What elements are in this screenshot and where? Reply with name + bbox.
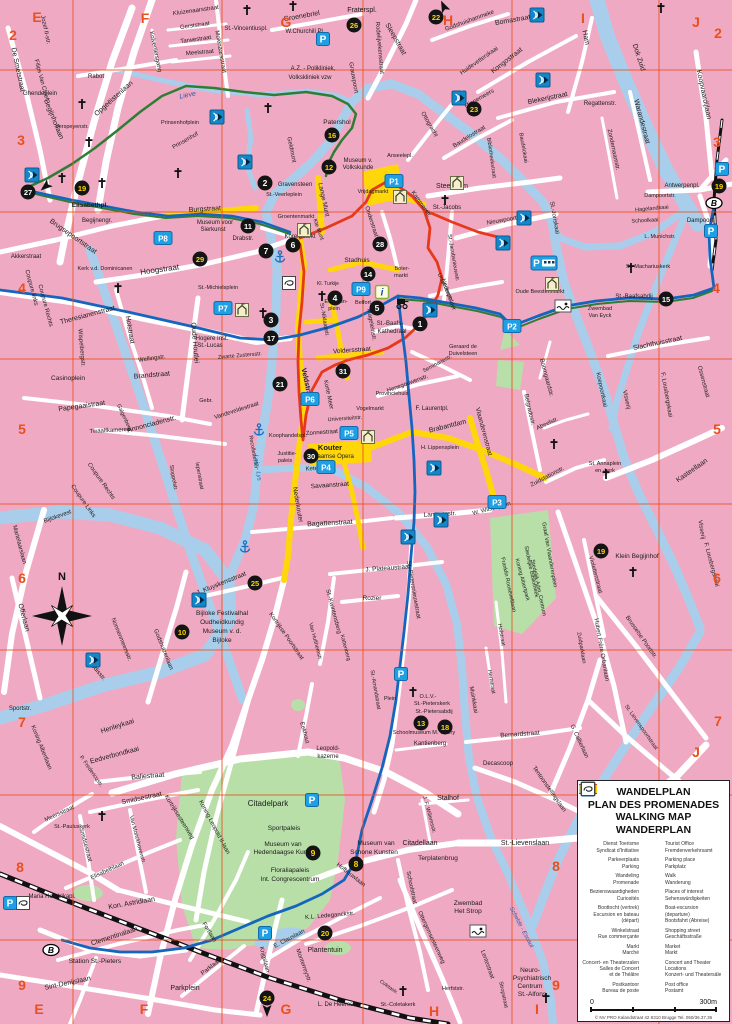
legend-label-en: Tourist OfficeFremdenverkehrsamt: [665, 841, 729, 854]
station-icon[interactable]: B: [706, 198, 722, 209]
poi-marker-18[interactable]: 18: [438, 720, 453, 735]
legend-title-line: WALKING MAP: [582, 811, 725, 824]
info-icon[interactable]: i: [376, 286, 389, 299]
street-label: Kerk v.d. Dominicanen: [78, 266, 133, 272]
poi-marker-10[interactable]: 10: [175, 625, 190, 640]
swim-icon[interactable]: [470, 925, 486, 937]
street-label: Verspeyenstr.: [55, 124, 89, 130]
street-label: Neuro-: [520, 967, 540, 974]
legend-label-nl: WandelingPromenade: [582, 873, 639, 886]
street-label: Sportstr.: [9, 706, 32, 712]
concert-icon[interactable]: [25, 168, 39, 182]
poi-marker-31[interactable]: 31: [336, 364, 351, 379]
street-label: Museum v. d.: [203, 628, 242, 635]
street-label: Museum van: [357, 840, 395, 847]
poi-marker-5[interactable]: 5: [370, 301, 385, 316]
street-label: Centrum: [518, 983, 543, 990]
grid-label-I: I: [581, 10, 585, 26]
svg-text:P: P: [262, 929, 269, 940]
svg-text:B: B: [48, 945, 54, 955]
legend-label-nl: MarktMarché: [582, 944, 639, 957]
legend-label-en: WalkWanderung: [665, 873, 729, 886]
street-label: Koophandelspl.: [269, 433, 307, 439]
grid-label-F: F: [140, 1001, 149, 1017]
parking-P[interactable]: P: [317, 33, 330, 46]
svg-text:6: 6: [291, 240, 296, 250]
svg-text:P7: P7: [218, 305, 228, 314]
street-label: Museum voor: [197, 220, 233, 226]
street-label: Kouter: [318, 443, 342, 452]
street-label: St.-Alfons: [518, 991, 547, 998]
svg-text:14: 14: [364, 270, 373, 279]
market-icon[interactable]: [298, 224, 311, 237]
svg-text:P3: P3: [492, 499, 502, 508]
svg-text:P: P: [398, 670, 405, 681]
street-label: Kantienberg: [414, 741, 446, 747]
market-icon[interactable]: [451, 177, 464, 190]
svg-text:19: 19: [715, 182, 723, 191]
svg-text:20: 20: [321, 929, 329, 938]
svg-text:B: B: [711, 198, 717, 208]
legend-label-en: Places of interestSehenswürdigkeiten: [665, 889, 729, 902]
street-label: L. Munichstr.: [644, 234, 676, 240]
svg-text:P: P: [7, 899, 14, 910]
legend-row-shopping-street: WinkelstraatRue commerçanteShopping stre…: [582, 928, 725, 941]
street-label: Volkskliniek vzw: [288, 75, 332, 81]
legend-row-concert-theater: Concert- en TheaterzalenSalles de Concer…: [582, 960, 725, 979]
street-label: L. De Heerestr.: [318, 1002, 359, 1008]
street-label: Plantentuin: [307, 947, 342, 954]
parking-P7[interactable]: P7: [214, 302, 232, 315]
street-label: Hedendaagse Kunst: [254, 849, 313, 856]
grid-label-H: H: [443, 12, 453, 28]
street-label: Boter-: [395, 266, 410, 272]
street-label: Zwembad: [454, 900, 483, 907]
street-label: Fraterspl.: [347, 7, 377, 14]
grid-label-8: 8: [552, 858, 560, 874]
street-label: Plein: [384, 696, 396, 702]
station-icon[interactable]: B: [43, 945, 59, 956]
poi-marker-1[interactable]: 1: [413, 317, 428, 332]
concert-icon[interactable]: [210, 110, 224, 124]
street-label: Klein Begijnhof: [615, 553, 659, 560]
grid-label-4: 4: [712, 280, 720, 296]
street-label: Museum van: [264, 841, 302, 848]
parking-P6[interactable]: P6: [301, 393, 319, 406]
legend-label-nl: ParkeerplaatsParking: [582, 857, 639, 870]
concert-icon[interactable]: [530, 8, 544, 22]
poi-marker-26[interactable]: 26: [347, 18, 362, 33]
concert-icon[interactable]: [192, 593, 206, 607]
street-label: Duivelsteen: [449, 351, 478, 357]
poi-marker-6[interactable]: 6: [286, 238, 301, 253]
parking-P[interactable]: P: [306, 794, 319, 807]
legend-label-en: Shopping streetGeschäftsstraße: [665, 928, 729, 941]
poi-marker-25[interactable]: 25: [248, 576, 263, 591]
street-label: Decascoop: [483, 761, 514, 767]
svg-text:P: P: [533, 259, 540, 270]
street-label: St.-Veerleplein: [266, 192, 302, 198]
street-label: St.-Pietersabdij: [415, 709, 452, 715]
street-label: Parkplein: [170, 985, 199, 992]
parking-P1[interactable]: P1: [385, 175, 403, 188]
street-label: Het Strop: [454, 908, 482, 915]
street-label: Bijloke Festivalhal: [196, 610, 249, 617]
parking-P3[interactable]: P3: [488, 496, 506, 509]
poi-marker-7[interactable]: 7: [259, 244, 274, 259]
street-label: O.L.V.-: [420, 694, 437, 700]
street-label: Rabot: [88, 74, 104, 80]
street-label: St.-Baafs-: [377, 321, 404, 327]
street-label: Dampoort: [687, 218, 714, 224]
market-icon[interactable]: [546, 278, 559, 291]
grid-label-6: 6: [18, 570, 26, 586]
grid-label-J: J: [692, 14, 700, 30]
concert-icon[interactable]: [434, 513, 448, 527]
post-icon[interactable]: [17, 897, 30, 910]
poi-marker-30[interactable]: 30: [304, 449, 319, 464]
street-label: Sierkunst: [200, 227, 225, 233]
street-label: Dampoortstr.: [644, 193, 676, 199]
concert-icon[interactable]: [86, 653, 100, 667]
street-label: St.-Lucas: [197, 343, 222, 349]
park: [291, 699, 305, 711]
svg-text:4: 4: [333, 293, 338, 303]
svg-text:P6: P6: [305, 396, 315, 405]
street-label: Geraard de: [449, 344, 477, 350]
grid-label-9: 9: [552, 977, 560, 993]
street-label: Oudheidkundig: [200, 619, 244, 626]
street-label: Casinoplein: [51, 375, 85, 382]
street-label: plein: [328, 306, 340, 312]
street-label: Citadelpark: [248, 799, 289, 808]
grid-label-3: 3: [17, 132, 25, 148]
legend-title-line: WANDERPLAN: [582, 824, 725, 837]
poi-marker-3[interactable]: 3: [264, 313, 279, 328]
grid-label-4: 4: [18, 280, 26, 296]
street-label: paleis: [278, 458, 293, 464]
street-label: Vrijdagmarkt: [358, 189, 389, 195]
grid-label-E: E: [34, 1001, 43, 1017]
parking-P[interactable]: P: [395, 668, 408, 681]
svg-text:23: 23: [470, 105, 478, 114]
street-label: St.-Jacobs: [433, 205, 461, 211]
grid-label-E: E: [32, 9, 41, 25]
street-label: St.-Coletakerk: [381, 1002, 416, 1008]
poi-marker-4[interactable]: 4: [328, 291, 343, 306]
street-label: Kathedraal: [377, 329, 406, 335]
svg-text:31: 31: [339, 367, 347, 376]
shopping-street: [306, 320, 336, 322]
poi-marker-24[interactable]: 24: [260, 991, 275, 1006]
poi-marker-23[interactable]: 23: [467, 102, 482, 117]
poi-marker-9[interactable]: 9: [306, 846, 321, 861]
street-label: Ghendeplein: [23, 91, 57, 97]
street-label: Int. Congrescentrum: [261, 876, 320, 883]
parking-P[interactable]: P: [4, 897, 17, 910]
svg-text:P: P: [309, 796, 316, 807]
street-label: St.-Pieterskerk: [414, 701, 450, 707]
poi-marker-27[interactable]: 27: [21, 185, 36, 200]
poi-marker-19[interactable]: 19: [712, 179, 727, 194]
svg-text:17: 17: [267, 334, 275, 343]
street-label: St.-Baafsabdij: [615, 294, 652, 300]
svg-text:28: 28: [376, 240, 384, 249]
park: [496, 360, 524, 390]
copyright: © NV PRO Kalandstraat 42 8310 Brugge Tel…: [582, 1015, 725, 1020]
street-label: Station St.-Pieters: [69, 958, 122, 965]
legend-row-tourist-office: Dienst ToerismeSyndicat d'InitiativeiTou…: [582, 841, 725, 854]
legend-row-post-office: PostkantoorBureau de postePost officePos…: [582, 982, 725, 995]
svg-text:18: 18: [441, 723, 449, 732]
svg-text:10: 10: [178, 628, 186, 637]
svg-text:22: 22: [432, 13, 440, 22]
street-label: Psychiatrisch: [513, 975, 552, 982]
legend-label-en: Concert and TheaterLocationsKonzert- und…: [665, 960, 729, 979]
parking-P4[interactable]: P4: [317, 461, 335, 474]
street-label: Leopold-: [316, 746, 339, 752]
svg-text:25: 25: [251, 579, 259, 588]
street-label: Volkskunde: [343, 165, 374, 171]
street-label: Rozier: [363, 595, 383, 602]
poi-marker-19[interactable]: 19: [75, 181, 90, 196]
grid-label-9: 9: [18, 977, 26, 993]
poi-marker-8[interactable]: 8: [349, 857, 364, 872]
swim-icon[interactable]: [555, 300, 571, 312]
street-label: Floraliapaleis: [271, 867, 310, 874]
street-label: St.-Vincentiuspl.: [224, 26, 268, 32]
concert-icon[interactable]: [536, 73, 550, 87]
grid-label-F: F: [141, 10, 150, 26]
svg-text:P: P: [708, 227, 715, 238]
street-label: Belfort: [355, 300, 371, 306]
svg-text:19: 19: [597, 547, 605, 556]
legend-title-line: PLAN DES PROMENADES: [582, 799, 725, 812]
post-icon[interactable]: [582, 783, 595, 796]
street-label: Regattenstr.: [584, 101, 617, 107]
street-label: St.-Michielsplein: [198, 285, 238, 291]
svg-text:16: 16: [328, 131, 336, 140]
svg-text:29: 29: [196, 255, 204, 264]
legend-row-places-of-interest: BezienswaardighedenCuriositésPlaces of i…: [582, 889, 725, 902]
svg-text:P5: P5: [344, 430, 354, 439]
poi-marker-19[interactable]: 19: [594, 544, 609, 559]
poi-marker-17[interactable]: 17: [264, 331, 279, 346]
svg-text:7: 7: [264, 246, 269, 256]
svg-text:21: 21: [276, 380, 284, 389]
svg-text:P: P: [320, 35, 327, 46]
legend-label-nl: Boottocht (vertrek)Excursion en bateau(d…: [582, 905, 639, 924]
poi-marker-12[interactable]: 12: [322, 160, 337, 175]
svg-text:30: 30: [307, 452, 315, 461]
legend-rows: Dienst ToerismeSyndicat d'InitiativeiTou…: [582, 841, 725, 994]
parking-P8[interactable]: P8: [154, 232, 172, 245]
street-label: Maria Hendrikapl.: [28, 894, 75, 900]
street-label: Provinciehuis: [376, 391, 409, 397]
legend-label-en: Boat-excursion(departure)Bootsfahrt (Abr…: [665, 905, 729, 924]
legend-label-nl: Dienst ToerismeSyndicat d'Initiative: [582, 841, 639, 854]
street-label: Gravensteen: [278, 182, 312, 188]
grid-label-G: G: [281, 1001, 292, 1017]
svg-text:13: 13: [417, 719, 425, 728]
svg-text:15: 15: [662, 295, 670, 304]
street-label: Citadellaan: [402, 840, 437, 847]
legend-label-en: Post officePostamt: [665, 982, 729, 995]
legend-label-nl: WinkelstraatRue commerçante: [582, 928, 639, 941]
legend-label-nl: PostkantoorBureau de poste: [582, 982, 639, 995]
street-label: F. Laurentpl.: [415, 406, 448, 412]
svg-text:12: 12: [325, 163, 333, 172]
svg-text:26: 26: [350, 21, 358, 30]
grid-label-6: 6: [713, 570, 721, 586]
park: [73, 885, 103, 901]
legend-label-nl: Concert- en TheaterzalenSalles de Concer…: [582, 960, 639, 979]
street-label: H. Lippensplein: [421, 445, 459, 451]
concert-icon[interactable]: [238, 155, 252, 169]
grid-label-H: H: [429, 1003, 439, 1019]
svg-text:P8: P8: [158, 235, 168, 244]
svg-text:P1: P1: [389, 178, 399, 187]
parking-P2[interactable]: P2: [503, 320, 521, 333]
legend-title-line: WANDELPLAN: [582, 786, 725, 799]
street-label: Stadhuis: [344, 257, 370, 264]
legend-label-en: Parking placeParkplatz: [665, 857, 729, 870]
poi-marker-11[interactable]: 11: [241, 219, 256, 234]
parking-P9[interactable]: P9: [352, 283, 370, 296]
svg-text:8: 8: [354, 859, 359, 869]
parking-P5[interactable]: P5: [340, 427, 358, 440]
parking-P[interactable]: P: [716, 163, 729, 176]
legend-row-market: MarktMarchéMarketMarkt: [582, 944, 725, 957]
poi-marker-13[interactable]: 13: [414, 716, 429, 731]
grid-label-I: I: [535, 1001, 539, 1017]
poi-marker-20[interactable]: 20: [318, 926, 333, 941]
grid-label-J: J: [692, 744, 700, 760]
street-label: Justitie-: [278, 451, 297, 457]
street-label: Vogelmarkt: [356, 406, 384, 412]
street-label: Museum v.: [344, 158, 373, 164]
grid-label-5: 5: [713, 421, 721, 437]
scale-start: 0: [590, 999, 594, 1006]
svg-text:P2: P2: [507, 323, 517, 332]
scale-bar: 0 300m: [582, 999, 725, 1012]
street-label: markt: [394, 273, 408, 279]
street-label: Akkerstraat: [11, 254, 42, 260]
grid-label-3: 3: [713, 134, 721, 150]
parking-P[interactable]: P: [705, 225, 718, 238]
street-label: Stalhof: [437, 795, 459, 802]
busP-icon[interactable]: P: [531, 256, 557, 270]
svg-text:3: 3: [269, 315, 274, 325]
street-label: Bijloke: [212, 637, 232, 644]
street-label: A.Z. - Polikliniek,: [291, 66, 336, 72]
grid-label-7: 7: [18, 714, 26, 730]
street-label: Groentenmarkt: [278, 214, 315, 220]
street-label: Kl. Turkije: [317, 281, 339, 287]
walking-map-page: De SmetstraatFilips Van CleefJozef II-st…: [0, 0, 732, 1024]
svg-text:N: N: [58, 571, 66, 583]
street-label: Hogere Inst.: [196, 336, 229, 342]
street-label: Herfststr.: [442, 986, 464, 992]
legend-title: WANDELPLANPLAN DES PROMENADESWALKING MAP…: [582, 786, 725, 836]
svg-text:P9: P9: [356, 286, 366, 295]
svg-text:P: P: [719, 165, 726, 176]
street-label: St.-Pauluskerk: [54, 824, 90, 830]
poi-marker-29[interactable]: 29: [193, 252, 208, 267]
street-label: Sportpaleis: [268, 825, 301, 832]
street-label: Schone Kunsten: [350, 849, 398, 856]
poi-marker-2[interactable]: 2: [258, 176, 273, 191]
svg-text:1: 1: [418, 319, 423, 329]
street-label: Zwembad: [588, 306, 612, 312]
post-icon[interactable]: [283, 277, 296, 290]
legend-label-nl: BezienswaardighedenCuriosités: [582, 889, 639, 902]
street-label: St.-Lievenslaan: [501, 840, 549, 847]
street-label: Begijnengr.: [82, 218, 112, 224]
street-label: Vlaamse Opera: [312, 454, 354, 460]
street-label: Patershol: [323, 119, 351, 126]
grid-label-G: G: [281, 14, 292, 30]
concert-icon[interactable]: [496, 236, 510, 250]
svg-text:2: 2: [263, 178, 268, 188]
street-label: Drabstr.: [232, 236, 253, 242]
street-label: St. Annaplein: [589, 461, 621, 467]
parking-P[interactable]: P: [259, 927, 272, 940]
legend-label-en: MarketMarkt: [665, 944, 729, 957]
grid-label-2: 2: [9, 27, 17, 43]
street-label: Antwerpenpl.: [664, 183, 699, 189]
grid-label-2: 2: [714, 25, 722, 41]
grid-label-8: 8: [16, 859, 24, 875]
poi-marker-21[interactable]: 21: [273, 377, 288, 392]
svg-text:19: 19: [78, 184, 86, 193]
legend-row-boat-excursion: Boottocht (vertrek)Excursion en bateau(d…: [582, 905, 725, 924]
street-label: Van Eyck: [589, 313, 612, 319]
legend-row-parking: ParkeerplaatsParkingParking placeParkpla…: [582, 857, 725, 870]
grid-label-7: 7: [714, 713, 722, 729]
concert-icon[interactable]: [427, 461, 441, 475]
market-icon[interactable]: [394, 191, 407, 204]
concert-icon[interactable]: [452, 91, 466, 105]
scale-end: 300m: [699, 999, 717, 1006]
svg-text:11: 11: [244, 222, 252, 231]
street-label: Terplatenbrug: [418, 855, 458, 862]
svg-text:27: 27: [24, 188, 32, 197]
poi-marker-22[interactable]: 22: [429, 10, 444, 25]
svg-text:i: i: [381, 288, 384, 299]
market-icon[interactable]: [362, 431, 375, 444]
legend-box: WANDELPLANPLAN DES PROMENADESWALKING MAP…: [577, 780, 730, 1022]
street-label: Prinsenhofplein: [161, 120, 199, 126]
market-icon[interactable]: [236, 304, 249, 317]
poi-marker-16[interactable]: 16: [325, 128, 340, 143]
concert-icon[interactable]: [517, 211, 531, 225]
svg-text:9: 9: [311, 848, 316, 858]
svg-text:24: 24: [263, 994, 272, 1003]
street-label: Anseelepl.: [387, 153, 413, 159]
poi-marker-15[interactable]: 15: [659, 292, 674, 307]
street-label: Gebr.: [199, 398, 213, 404]
poi-marker-14[interactable]: 14: [361, 267, 376, 282]
concert-icon[interactable]: [423, 303, 437, 317]
poi-marker-28[interactable]: 28: [373, 237, 388, 252]
grid-label-5: 5: [18, 421, 26, 437]
svg-text:P4: P4: [321, 464, 331, 473]
concert-icon[interactable]: [401, 530, 415, 544]
street-label: Elisabethpl.: [72, 202, 109, 209]
legend-row-walk: WandelingPromenadeWalkWanderung: [582, 873, 725, 886]
svg-text:5: 5: [375, 303, 380, 313]
